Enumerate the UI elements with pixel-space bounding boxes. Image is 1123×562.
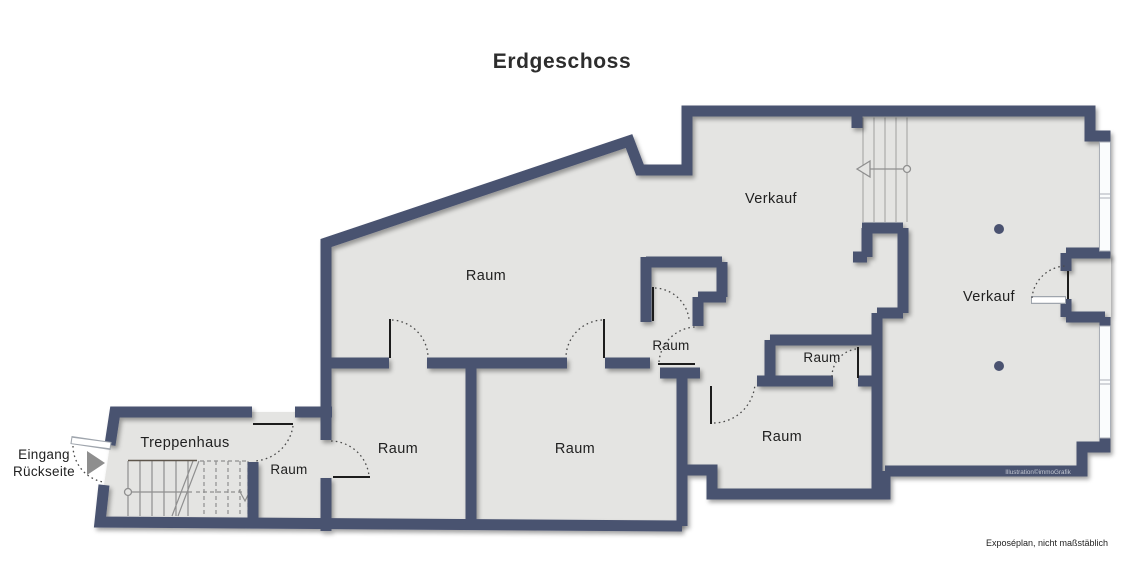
room-label-raum-center: Raum xyxy=(652,338,689,353)
illustrator-watermark: Illustration©immoGrafik xyxy=(1005,468,1071,476)
floor-plan-page: Erdgeschoss Verkauf Verkauf Raum Raum Ra… xyxy=(0,0,1123,562)
entrance-label-line1: Eingang xyxy=(18,447,70,462)
room-label-raum-large: Raum xyxy=(466,268,506,284)
entrance-arrow-icon xyxy=(87,451,105,475)
stair-end-circle xyxy=(904,166,911,173)
room-label-raum-lower-middle: Raum xyxy=(555,441,595,457)
floor-plan-canvas: Erdgeschoss Verkauf Verkauf Raum Raum Ra… xyxy=(0,0,1123,562)
room-label-raum-hallway: Raum xyxy=(270,462,307,477)
room-label-raum-lower-right: Raum xyxy=(762,429,802,445)
column-bottom xyxy=(994,361,1004,371)
page-title: Erdgeschoss xyxy=(493,50,632,73)
window-right-top xyxy=(1100,142,1111,251)
column-top xyxy=(994,224,1004,234)
entrance-label-line2: Rückseite xyxy=(13,464,75,479)
room-label-raum-lower-left: Raum xyxy=(378,441,418,457)
room-label-treppenhaus: Treppenhaus xyxy=(140,435,229,451)
scale-disclaimer: Exposéplan, nicht maßstäblich xyxy=(986,538,1108,548)
window-right-bottom xyxy=(1100,326,1111,438)
room-label-raum-center-right: Raum xyxy=(803,350,840,365)
stair-start-circle xyxy=(125,489,132,496)
room-label-verkauf-top: Verkauf xyxy=(745,191,798,207)
room-label-verkauf-right: Verkauf xyxy=(963,289,1016,305)
